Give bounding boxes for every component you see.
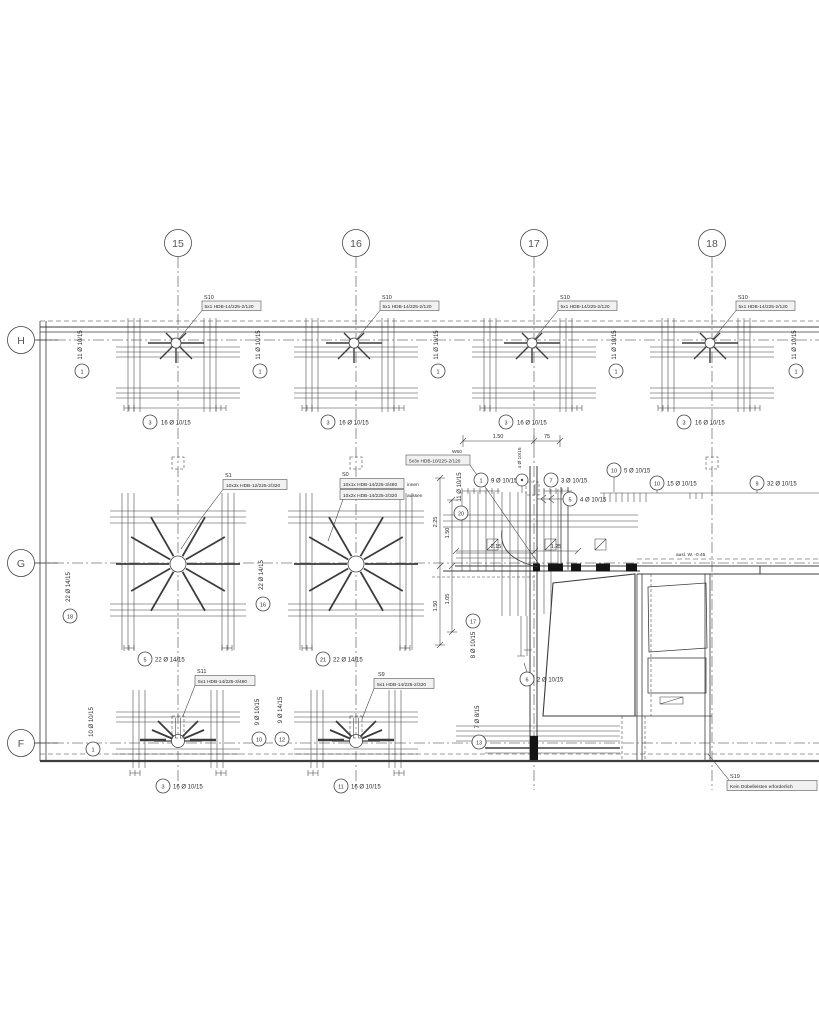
callout-pos10a: 10 5 Ø 10/15 [607, 463, 651, 492]
h-side-callout-right: 11 Ø 10/15 1 [789, 330, 803, 378]
position-number: 9 [755, 482, 758, 488]
slab-edges: ausl. W. -0.45 [40, 321, 819, 761]
position-number: 12 [279, 738, 285, 744]
position-number: 10 [654, 482, 660, 488]
callout-g-side-left: 22 Ø 14/15 18 [63, 571, 77, 623]
position-number: 17 [470, 620, 476, 626]
opening-2 [648, 658, 706, 693]
callout-f-side-left: 10 Ø 10/15 1 [86, 706, 100, 756]
grid-bubble-17: 17 [521, 230, 548, 257]
position-number: 1 [80, 370, 83, 376]
row-bubble-G: G [8, 550, 35, 577]
position-number: 3 [682, 421, 685, 427]
row-label-H: H [17, 335, 25, 347]
rebar-label: 22 Ø 14/15 [66, 571, 72, 601]
level-note: ausl. W. -0.45 [676, 552, 706, 558]
h-column-16: 3 16 Ø 10/15 S10 5x1 HDB-14/225-2/120 11… [253, 295, 439, 429]
dim-75-top: 75 [544, 434, 550, 440]
dim-150-left-lower: 1.50 [433, 601, 439, 612]
rebar-label: 16 Ø 10/15 [173, 785, 203, 791]
central-detail-linework [432, 465, 819, 761]
rail-label-s10: S10 5x1 HDB-14/225-2/120 [534, 295, 617, 340]
rail-id: S10 [382, 295, 392, 301]
grid-bubble-16: 16 [343, 230, 370, 257]
callout-f-bottom: 3 16 Ø 10/15 [156, 779, 203, 793]
dim-150-top: 1.50 [493, 434, 504, 440]
shear-stud-star [326, 333, 382, 363]
callout-col-tie: 4 Ø 10/15 [517, 447, 523, 468]
grid-axes: 15 16 17 18 H G F [8, 230, 819, 791]
h-column-15: 3 16 Ø 10/15 S10 5x1 HDB-14/225-2/120 11… [75, 295, 261, 429]
rail-spec: 5x1 HDB-14/225-3/480 [198, 679, 247, 685]
shear-stud-star [504, 333, 560, 363]
rebar-label: 22 Ø 14/15 [333, 658, 363, 664]
row-bubble-H: H [8, 327, 35, 354]
position-number: 20 [458, 512, 464, 518]
dim-215-mid: 2.15 [491, 544, 502, 550]
callout-pos6: 6 2 Ø 10/15 [520, 663, 564, 686]
h-column-17: 3 16 Ø 10/15 S10 5x1 HDB-14/225-2/120 11… [431, 295, 617, 429]
rebar-label: 16 Ø 10/15 [161, 421, 191, 427]
position-number: 5 [568, 498, 571, 504]
position-number: 16 [260, 603, 266, 609]
grid-bubble-18: 18 [699, 230, 726, 257]
position-number: 1 [794, 370, 797, 376]
grid-label-16: 16 [350, 238, 362, 250]
position-number: 13 [476, 741, 482, 747]
callout-f12: 9 Ø 14/15 12 [275, 696, 289, 746]
position-number: 1 [436, 370, 439, 376]
grid-label-17: 17 [528, 238, 540, 250]
dim-225-left: 2.25 [433, 517, 439, 528]
h-column-18: 3 16 Ø 10/15 S10 5x1 HDB-14/225-2/120 11… [609, 295, 795, 429]
position-number: 1 [479, 479, 482, 485]
rebar-label: 22 Ø 14/15 [259, 559, 265, 589]
rail-spec: 5x1 HDB-14/225-2/320 [377, 682, 426, 688]
row-bubble-F: F [8, 730, 35, 757]
rail-spec-inner: 10x1x HDB-14/225-3/480 [343, 482, 397, 488]
dim-105-left: 1.05 [445, 594, 451, 605]
callout-pos1: 1 9 Ø 10/15 [474, 473, 518, 487]
rebar-label: 32 Ø 10/15 [767, 482, 797, 488]
position-number: 7 [549, 479, 552, 485]
dimensions: 1.50 75 2.25 1.50 1.50 1.05 2.15 1.25 [433, 434, 581, 648]
callout-h-bottom: 3 16 Ø 10/15 [499, 415, 547, 429]
rebar-label: 10 Ø 10/15 [89, 706, 95, 736]
position-number: 1 [258, 370, 261, 376]
rail-id: S9 [378, 672, 385, 678]
position-number: 3 [148, 421, 151, 427]
rail-spec: 5x1 HDB-14/225-2/120 [383, 304, 432, 310]
callout-h-side: 11 Ø 10/15 1 [75, 330, 89, 378]
callout-pos7: 7 3 Ø 10/15 [544, 473, 588, 487]
rail-id: S10 [738, 295, 748, 301]
rail-spec: 10x3x HDB-12/225-2/320 [226, 483, 280, 489]
rail-id: S10 [560, 295, 570, 301]
rebar-label: 9 Ø 10/15 [491, 479, 518, 485]
position-number: 11 [338, 785, 344, 791]
rail-id: S1 [225, 473, 232, 479]
rail-id: S11 [197, 669, 206, 675]
rebar-label: 11 Ø 10/15 [434, 330, 440, 360]
rebar-label: 11 Ø 10/15 [612, 330, 618, 360]
rail-label-s10: S10 5x1 HDB-14/225-2/120 [356, 295, 439, 340]
wall-section-fill-f [530, 736, 538, 760]
callout-pos20: 11 Ø 10/15 20 [454, 472, 468, 520]
rail-note-inner: innen [407, 482, 419, 488]
row-label-G: G [17, 558, 25, 570]
rail-note: Kein Dübelleisten erforderlich [730, 784, 793, 790]
section-mark [516, 474, 528, 493]
rebar-label: 16 Ø 10/15 [339, 421, 369, 427]
position-number: 21 [320, 658, 326, 664]
callout-pos13: 7 Ø 8/15 13 [472, 705, 486, 749]
wall-section-fill [533, 564, 637, 572]
callout-g-side-mid: 22 Ø 14/15 16 [256, 559, 270, 611]
shear-stud-star [152, 721, 204, 748]
callout-pos9: 9 32 Ø 10/15 [750, 476, 797, 493]
position-number: 1 [91, 748, 94, 754]
rail-label-w60: W60 5x3x HDB-10/225-2/120 [406, 449, 470, 465]
shear-stud-star [330, 721, 382, 748]
rebar-label: 15 Ø 10/15 [667, 482, 697, 488]
rail-spec: 5x1 HDB-14/225-2/120 [561, 304, 610, 310]
ramp-outline [543, 574, 635, 716]
rebar-label: 8 Ø 10/15 [471, 631, 477, 658]
rail-id: S10 [204, 295, 214, 301]
row-label-F: F [18, 738, 24, 750]
rail-spec: 5x3x HDB-10/225-2/120 [409, 459, 461, 465]
rebar-label: 4 Ø 10/15 [517, 447, 523, 468]
rebar-label: 9 Ø 14/15 [278, 696, 284, 723]
position-number: 6 [525, 678, 528, 684]
rail-note-outer: aussen [407, 494, 423, 499]
rail-id: S0 [342, 472, 349, 478]
rebar-label: 16 Ø 10/15 [351, 785, 381, 791]
rebar-label: 11 Ø 10/15 [792, 330, 798, 360]
structural-plan-sheet: 15 16 17 18 H G F [0, 0, 819, 1024]
rail-spec: 5x1 HDB-14/225-2/120 [205, 304, 254, 310]
callout-h-side: 11 Ø 10/15 1 [609, 330, 623, 378]
position-number: 18 [67, 615, 73, 621]
rebar-label: 9 Ø 10/15 [255, 698, 261, 725]
callout-pos5: 5 4 Ø 10/15 [537, 492, 607, 506]
rail-label-s19: S19 Kein Dübelleisten erforderlich [708, 754, 817, 791]
shear-stud-star [682, 333, 738, 363]
opening-1 [648, 583, 707, 652]
rebar-label: 3 Ø 10/15 [561, 479, 588, 485]
grid-label-15: 15 [172, 238, 184, 250]
rebar-label: 11 Ø 10/15 [457, 472, 463, 502]
grid-label-18: 18 [706, 238, 718, 250]
grid-bubble-15: 15 [165, 230, 192, 257]
callout-h-bottom: 3 16 Ø 10/15 [143, 415, 191, 429]
rebar-label: 11 Ø 10/15 [78, 330, 84, 360]
position-number: 3 [161, 785, 164, 791]
dim-150-left-upper: 1.50 [445, 528, 451, 539]
position-number: 1 [614, 370, 617, 376]
callout-f-bottom: 11 16 Ø 10/15 [334, 779, 381, 793]
callout-f10: 9 Ø 10/15 10 [252, 698, 266, 746]
position-number: 3 [326, 421, 329, 427]
position-number: 10 [611, 469, 617, 475]
rebar-label: 2 Ø 10/15 [537, 678, 564, 684]
position-number: 10 [256, 738, 262, 744]
callout-h-bottom: 3 16 Ø 10/15 [321, 415, 369, 429]
plan-drawing: 15 16 17 18 H G F [0, 0, 819, 1024]
rebar-label: 4 Ø 10/15 [580, 498, 607, 504]
rebar-label: 16 Ø 10/15 [517, 421, 547, 427]
callout-h-bottom: 3 16 Ø 10/15 [677, 415, 725, 429]
callout-pos10b: 10 15 Ø 10/15 [650, 476, 697, 493]
rebar-label: 22 Ø 14/15 [155, 658, 185, 664]
rebar-label: 16 Ø 10/15 [695, 421, 725, 427]
rail-spec: 5x1 HDB-14/225-2/120 [739, 304, 788, 310]
rail-label-s10: S10 5x1 HDB-14/225-2/120 [712, 295, 795, 340]
dim-125-mid: 1.25 [551, 544, 562, 550]
position-number: 3 [504, 421, 507, 427]
callout-h-side: 11 Ø 10/15 1 [431, 330, 445, 378]
rail-id: W60 [452, 449, 462, 455]
rebar-label: 7 Ø 8/15 [475, 705, 481, 729]
rail-id: S19 [730, 774, 740, 780]
rebar-label: 11 Ø 10/15 [256, 330, 262, 360]
rail-spec-outer: 10x2x HDB-14/225-2/320 [343, 493, 397, 499]
callout-h-side: 11 Ø 10/15 1 [253, 330, 267, 378]
callout-pos17: 17 8 Ø 10/15 [466, 614, 480, 658]
position-number: 5 [143, 658, 146, 664]
rebar-label: 5 Ø 10/15 [624, 469, 651, 475]
shear-stud-star [148, 333, 204, 363]
rail-label-s10: S10 5x1 HDB-14/225-2/120 [178, 295, 261, 340]
rail-label-s11: S11 5x1 HDB-14/225-3/480 [183, 669, 255, 716]
